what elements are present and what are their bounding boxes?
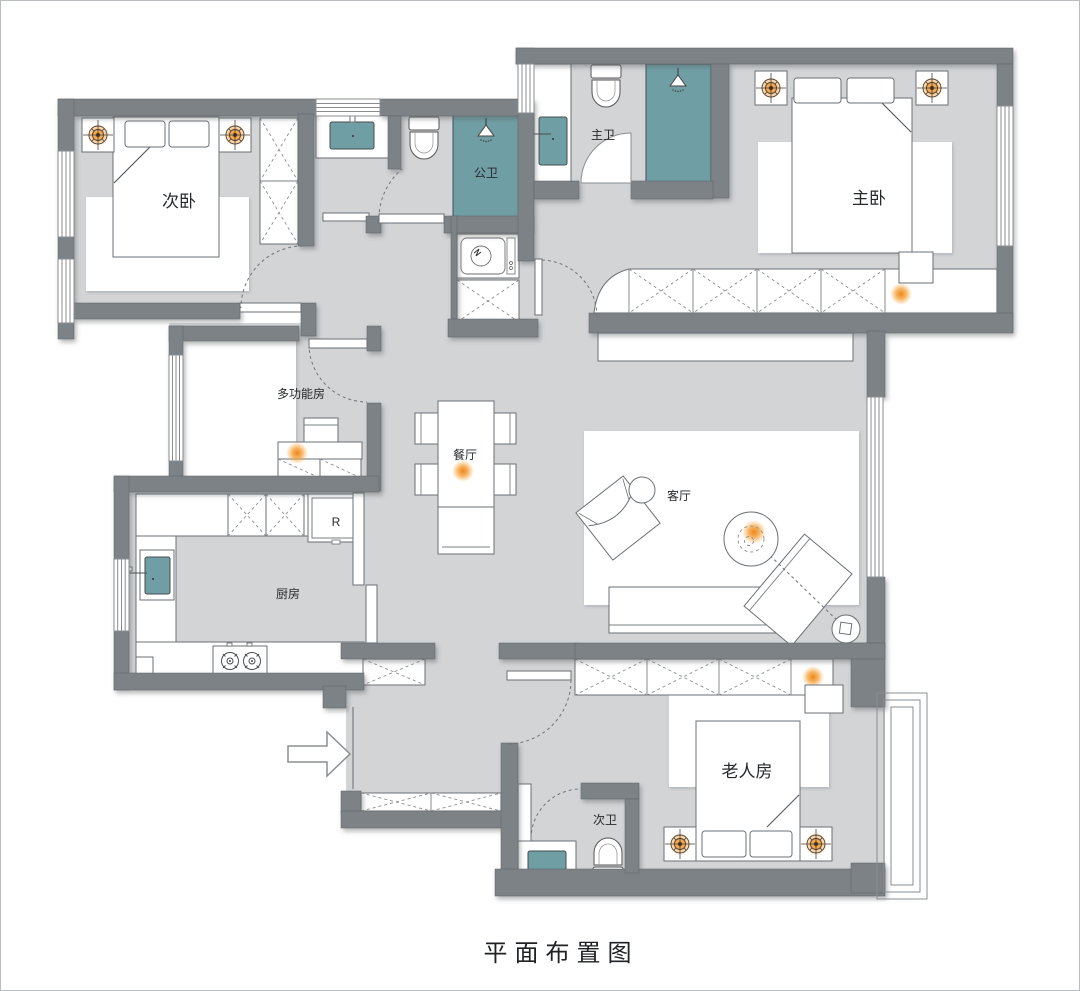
pillow [847, 78, 894, 103]
floor-plan-svg: R [1, 1, 1079, 990]
chair [491, 413, 516, 444]
label-elderly-room: 老人房 [722, 762, 773, 781]
toilet-icon [409, 117, 439, 159]
entry-arrow-icon [288, 732, 350, 776]
bedside-lamp-icon [755, 71, 787, 105]
door-leaf [379, 214, 444, 223]
bench [899, 252, 933, 283]
window [518, 64, 534, 113]
bedside-lamp-icon [664, 827, 696, 861]
chair [415, 464, 440, 495]
sliding-door-panel [366, 585, 377, 643]
downlight-glow [890, 283, 912, 305]
door-leaf [535, 259, 542, 315]
floor-plan-canvas: R [0, 0, 1080, 991]
coffee-table [724, 512, 778, 566]
pillow [125, 121, 165, 147]
label-public-bathroom: 公卫 [474, 166, 498, 180]
downlight-glow [286, 442, 308, 464]
chair [415, 413, 440, 444]
washing-machine-icon [457, 234, 519, 278]
shelf [323, 213, 369, 221]
label-master-bathroom: 主卫 [591, 128, 615, 142]
sink-icon [330, 122, 374, 149]
pillow [750, 831, 792, 857]
entry-cabinet [361, 793, 501, 811]
toilet-icon [591, 65, 621, 107]
door-leaf [240, 303, 301, 312]
label-master-bedroom: 主卧 [852, 189, 886, 208]
pillow [794, 78, 841, 103]
pillow [169, 121, 209, 147]
fridge-label: R [332, 515, 341, 529]
label-living-room: 客厅 [667, 488, 691, 503]
bedside-lamp-icon [800, 827, 832, 861]
tv-console [598, 333, 853, 361]
window [58, 259, 74, 323]
window [997, 106, 1013, 246]
shoe-cabinet [363, 659, 425, 685]
downlight-glow [452, 460, 474, 482]
label-dining-room: 餐厅 [453, 447, 477, 462]
corner-table [832, 615, 860, 643]
wardrobe [594, 269, 997, 313]
window [316, 99, 380, 116]
bed [792, 98, 912, 253]
sink-icon [539, 117, 567, 165]
window [114, 559, 129, 631]
window [58, 151, 74, 237]
pillow [702, 831, 746, 857]
chair [491, 464, 516, 495]
window [169, 355, 183, 461]
stove [213, 643, 267, 674]
side-table [629, 477, 655, 503]
sliding-door-panel [353, 493, 364, 585]
nightstand [805, 685, 843, 713]
door-panel [518, 784, 531, 841]
bedside-lamp-icon [82, 118, 114, 152]
bedside-lamp-icon [916, 71, 948, 105]
wardrobe [575, 659, 833, 695]
label-multifunction-room: 多功能房 [277, 386, 325, 401]
bay-window [877, 693, 927, 899]
sink-icon [145, 557, 170, 594]
window [867, 397, 883, 577]
label-secondary-bedroom: 次卧 [162, 192, 196, 211]
room-secondary-bedroom [82, 117, 298, 257]
bedside-lamp-icon [219, 118, 251, 152]
page-title: 平面布置图 [484, 939, 639, 967]
label-guest-bathroom: 次卫 [593, 813, 617, 827]
door-leaf [507, 671, 571, 680]
laundry-cabinet [457, 280, 519, 322]
door-leaf [309, 339, 367, 348]
label-kitchen: 厨房 [276, 586, 300, 601]
